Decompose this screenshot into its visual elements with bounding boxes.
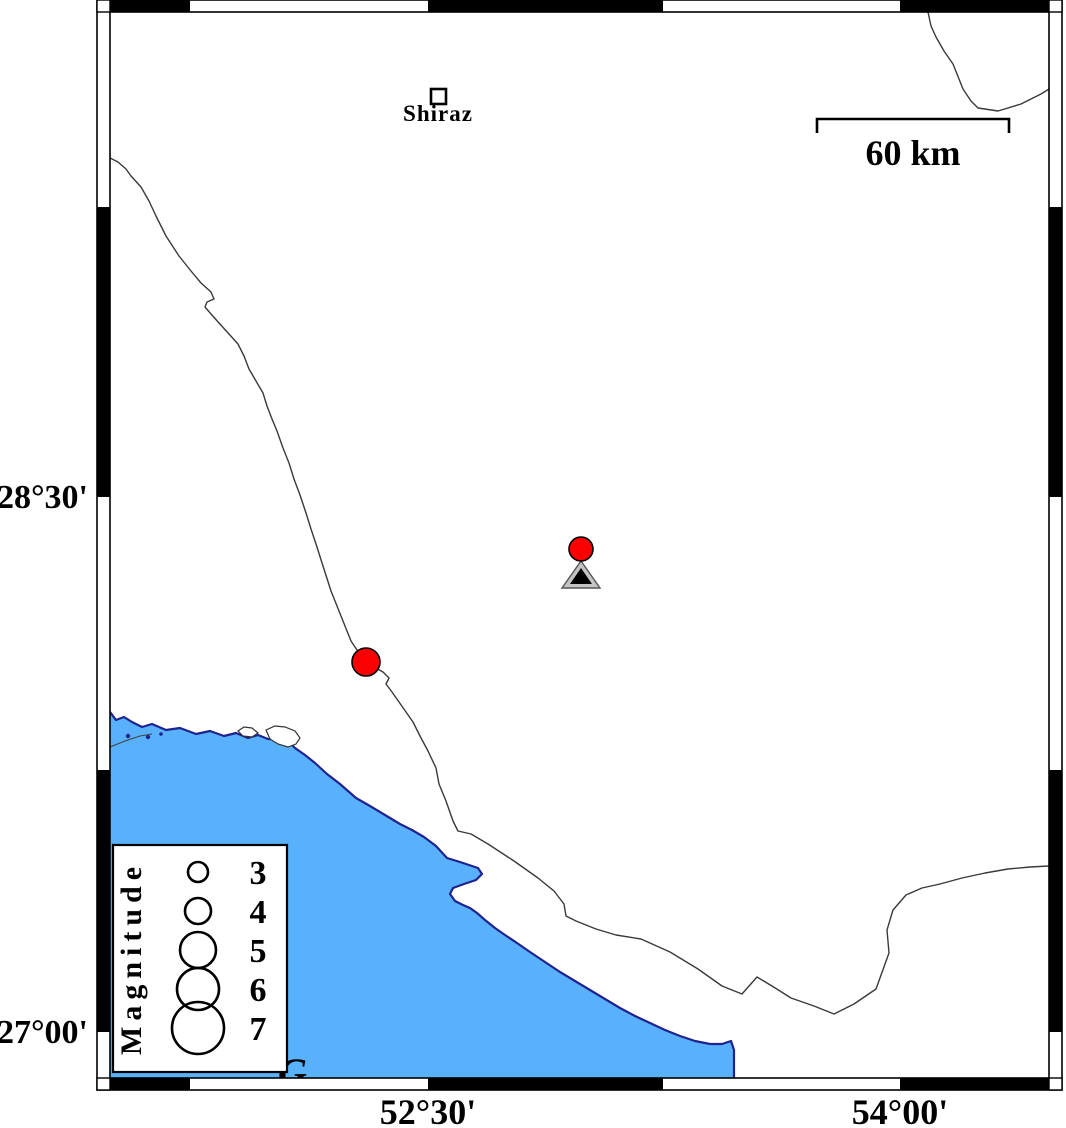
city-label: Shiraz — [403, 101, 473, 126]
magnitude-legend: Magnitude 34567 — [113, 845, 287, 1072]
frame-corner — [1049, 0, 1062, 12]
legend-value-m3: 3 — [250, 855, 267, 892]
earthquake-marker — [352, 648, 380, 676]
frame-segment — [900, 1078, 1049, 1090]
legend-value-m7: 7 — [250, 1011, 267, 1048]
lat-label-2830: 28°30' — [0, 479, 88, 516]
frame-corner — [97, 0, 110, 12]
lat-label-2700: 27°00' — [0, 1014, 88, 1051]
frame-segment — [97, 207, 110, 497]
frame-corner — [97, 1078, 110, 1090]
frame-segment — [428, 0, 663, 12]
frame-segment — [900, 0, 1049, 12]
frame-segment — [110, 0, 190, 12]
frame-corner — [1049, 1078, 1062, 1090]
frame-segment — [97, 770, 110, 1032]
legend-title: Magnitude — [115, 861, 148, 1055]
lon-label-5230: 52°30' — [380, 1092, 476, 1128]
map-canvas: G Magnitude 34567 60 km — [0, 0, 1066, 1128]
frame-segment — [1049, 770, 1062, 1032]
seismicity-map: G Magnitude 34567 60 km — [0, 0, 1066, 1128]
islet — [159, 732, 163, 736]
legend-value-m5: 5 — [250, 933, 267, 970]
frame-segment — [1049, 207, 1062, 497]
islet — [126, 734, 130, 738]
legend-value-m6: 6 — [250, 972, 267, 1009]
frame-segment — [110, 1078, 190, 1090]
earthquake-marker — [569, 537, 593, 561]
lon-label-5400: 54°00' — [852, 1092, 948, 1128]
scale-bar-label: 60 km — [865, 133, 960, 173]
frame-segment — [428, 1078, 663, 1090]
legend-value-m4: 4 — [250, 894, 267, 931]
